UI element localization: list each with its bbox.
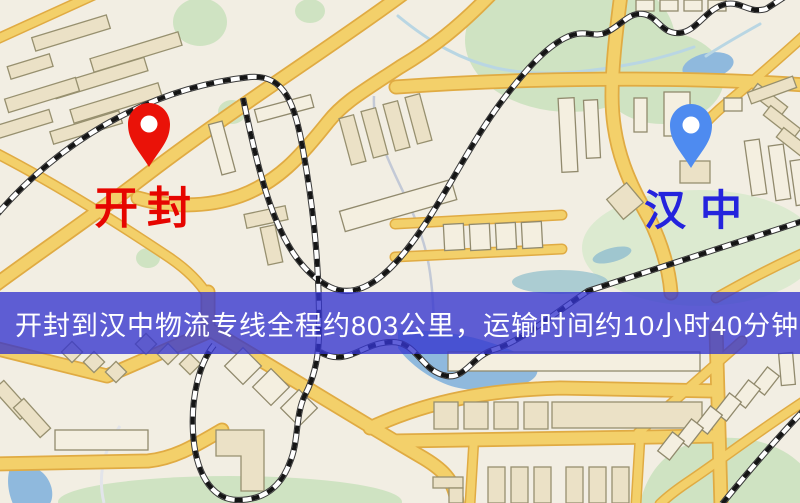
banner-text: 开封到汉中物流专线全程约803公里，运输时间约10小时40分钟.	[15, 304, 800, 343]
map-canvas[interactable]	[0, 0, 800, 503]
info-banner: 开封到汉中物流专线全程约803公里，运输时间约10小时40分钟.	[0, 292, 800, 354]
destination-label: 汉中	[644, 177, 756, 238]
map-screenshot: 开封 汉中 开封到汉中物流专线全程约803公里，运输时间约10小时40分钟.	[0, 0, 800, 503]
origin-label: 开封	[94, 172, 200, 236]
